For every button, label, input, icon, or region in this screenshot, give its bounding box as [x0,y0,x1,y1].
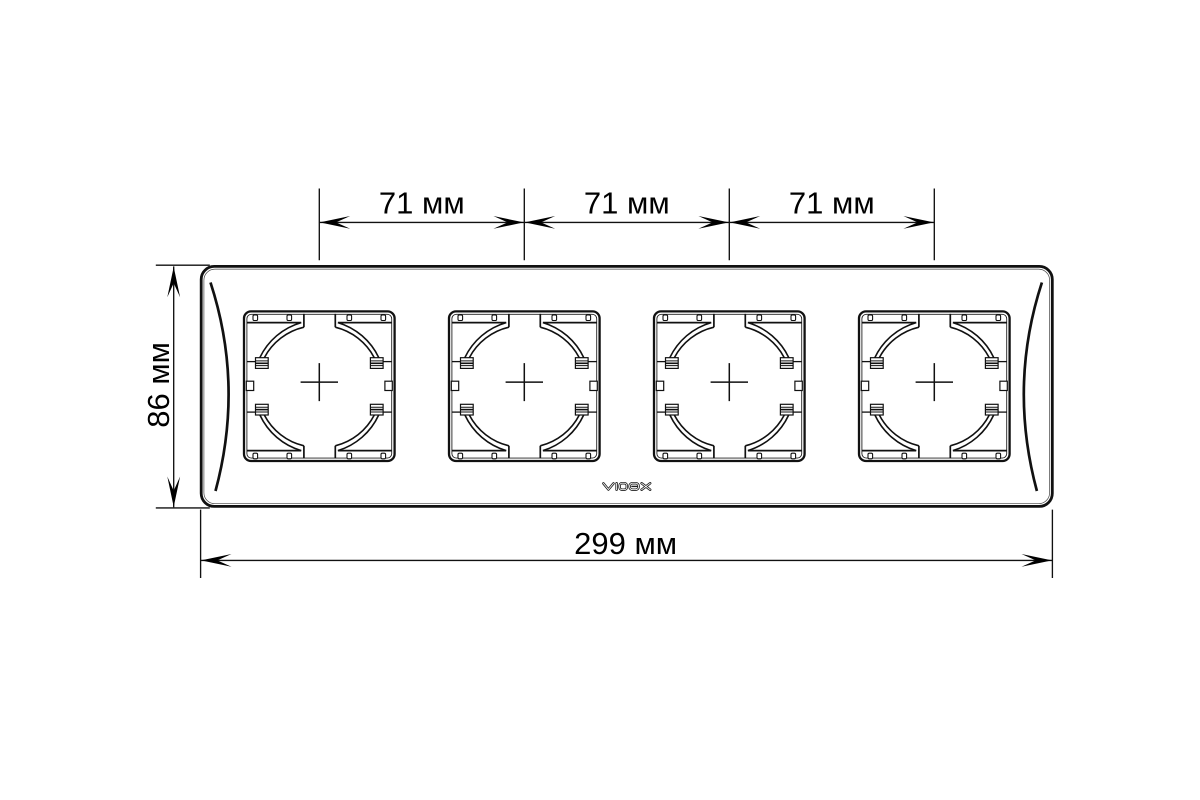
svg-text:71 мм: 71 мм [584,186,670,221]
svg-text:71 мм: 71 мм [789,186,875,221]
svg-text:71 мм: 71 мм [379,186,465,221]
svg-text:86 мм: 86 мм [141,342,176,428]
svg-text:299 мм: 299 мм [574,526,677,561]
